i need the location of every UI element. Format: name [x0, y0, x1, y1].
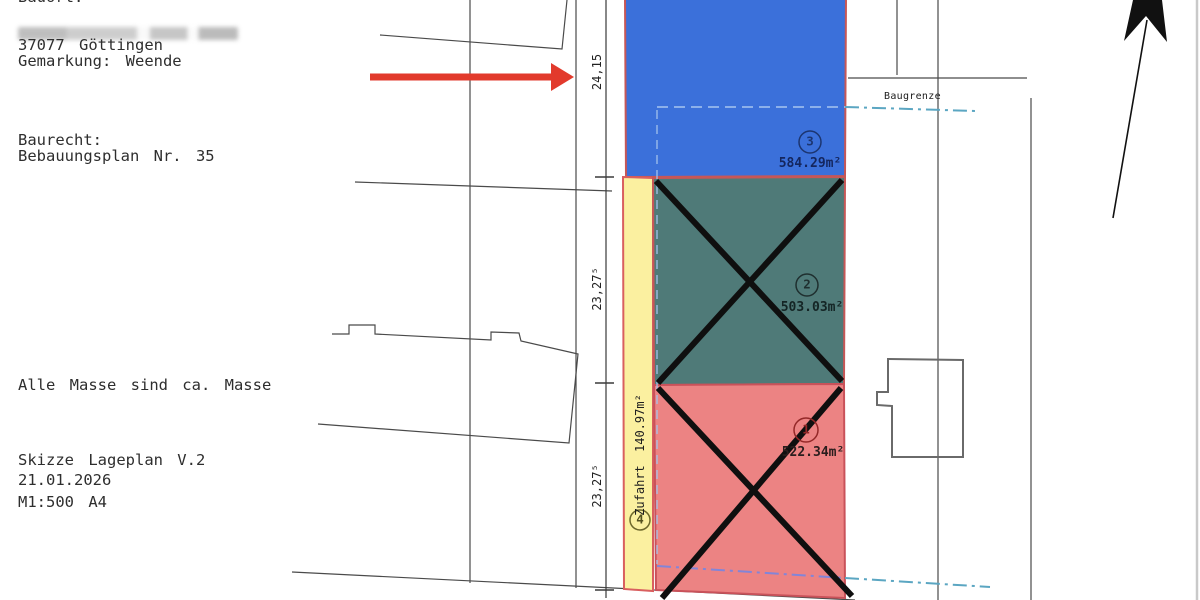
parcel-2-area: 503.03m² — [752, 300, 872, 315]
neighbor-building-left — [318, 325, 578, 443]
sketch-date: 21.01.2026 — [18, 471, 111, 489]
measure-note: Alle Masse sind ca. Masse — [18, 376, 271, 394]
neighbor-building-right — [877, 359, 963, 457]
sketch-title: Skizze Lageplan V.2 — [18, 451, 205, 469]
parcel-4-zufahrt-strip — [623, 177, 653, 591]
parcel-3-area: 584.29m² — [750, 156, 870, 171]
gemarkung-label: Gemarkung: Weende — [18, 52, 182, 70]
sketch-scale: M1:500 A4 — [18, 493, 107, 511]
north-arrow-shaft — [1113, 20, 1147, 218]
bebauungsplan-label: Bebauungsplan Nr. 35 — [18, 147, 215, 165]
baugrenze-top-outer — [845, 107, 975, 111]
neighbor-boundary-top — [380, 0, 567, 49]
parcel-1-area: 522.34m² — [753, 445, 873, 460]
zufahrt-label: Zufahrt 140.97m² — [633, 394, 647, 516]
dim-label-bottom: 23,27⁵ — [590, 464, 604, 507]
bauort-label: Bauort: — [18, 0, 83, 6]
red-arrow-head — [551, 63, 574, 91]
lageplan-sketch: Bauort: 37077 Göttingen Gemarkung: Weend… — [0, 0, 1200, 600]
parcel-3-shape — [625, 0, 846, 177]
baugrenze-label: Baugrenze — [884, 91, 941, 103]
boundary-extension — [355, 182, 612, 191]
baugrenze-bottom-outer — [845, 578, 990, 587]
parcel-3-number: 3 — [806, 135, 814, 150]
dim-label-mid: 23,27⁵ — [590, 267, 604, 310]
parcel-1-number: 1 — [802, 423, 810, 438]
parcel-2-number: 2 — [803, 278, 811, 293]
north-arrow-icon — [1113, 0, 1167, 218]
red-arrow-icon — [370, 63, 574, 91]
north-arrow-head — [1124, 0, 1167, 42]
dim-label-top: 24,15 — [590, 54, 604, 90]
